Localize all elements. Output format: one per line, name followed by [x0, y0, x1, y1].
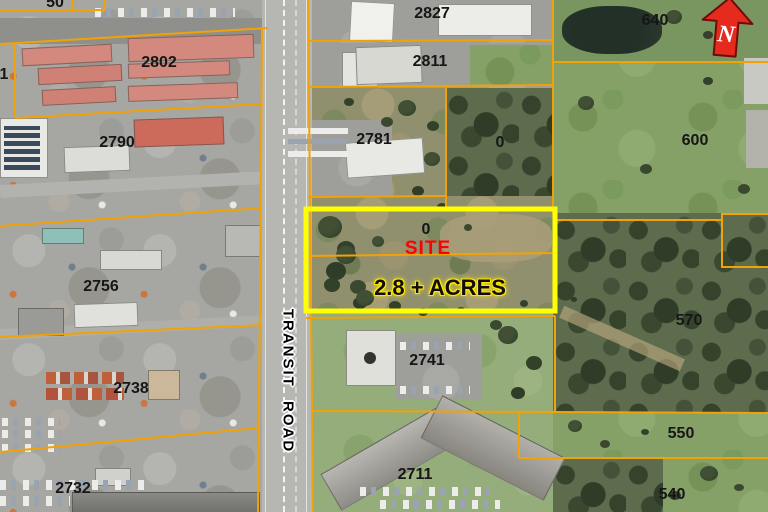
parcel-label-2756: 2756 — [83, 278, 119, 296]
site-parcel-number: 0 — [422, 221, 431, 239]
parcel-label-2738: 2738 — [113, 380, 149, 398]
parcel-label-50: 50 — [46, 0, 64, 12]
north-arrow-icon: N — [691, 0, 766, 63]
parcel-label-2711: 2711 — [398, 466, 433, 484]
road-name-label: TRANSIT ROAD — [280, 309, 297, 453]
parcel-label-2827: 2827 — [414, 5, 450, 23]
parcel-label-2781: 2781 — [356, 131, 392, 149]
parcel-label-550: 550 — [668, 425, 695, 443]
parcel-label-2732: 2732 — [55, 480, 91, 498]
parcel-label-640: 640 — [642, 12, 669, 30]
site-area-label: 2.8 + ACRES — [374, 275, 506, 301]
parcel-label-0: 0 — [496, 134, 505, 152]
parcel-label-600: 600 — [682, 132, 709, 150]
parcel-label-2802: 2802 — [141, 54, 177, 72]
aerial-parcel-map: 50 1 2802 2790 2756 2738 2732 2827 2811 … — [0, 0, 768, 512]
parcel-boundary-lines — [0, 0, 768, 512]
parcel-label-1: 1 — [0, 66, 8, 84]
parcel-lines-overlay — [0, 0, 768, 512]
parcel-label-2811: 2811 — [413, 53, 448, 71]
parcel-label-2790: 2790 — [99, 134, 135, 152]
parcel-label-2741: 2741 — [409, 352, 445, 370]
parcel-label-570: 570 — [676, 312, 703, 330]
parcel-label-540: 540 — [659, 486, 686, 504]
site-label: SITE — [405, 238, 451, 260]
